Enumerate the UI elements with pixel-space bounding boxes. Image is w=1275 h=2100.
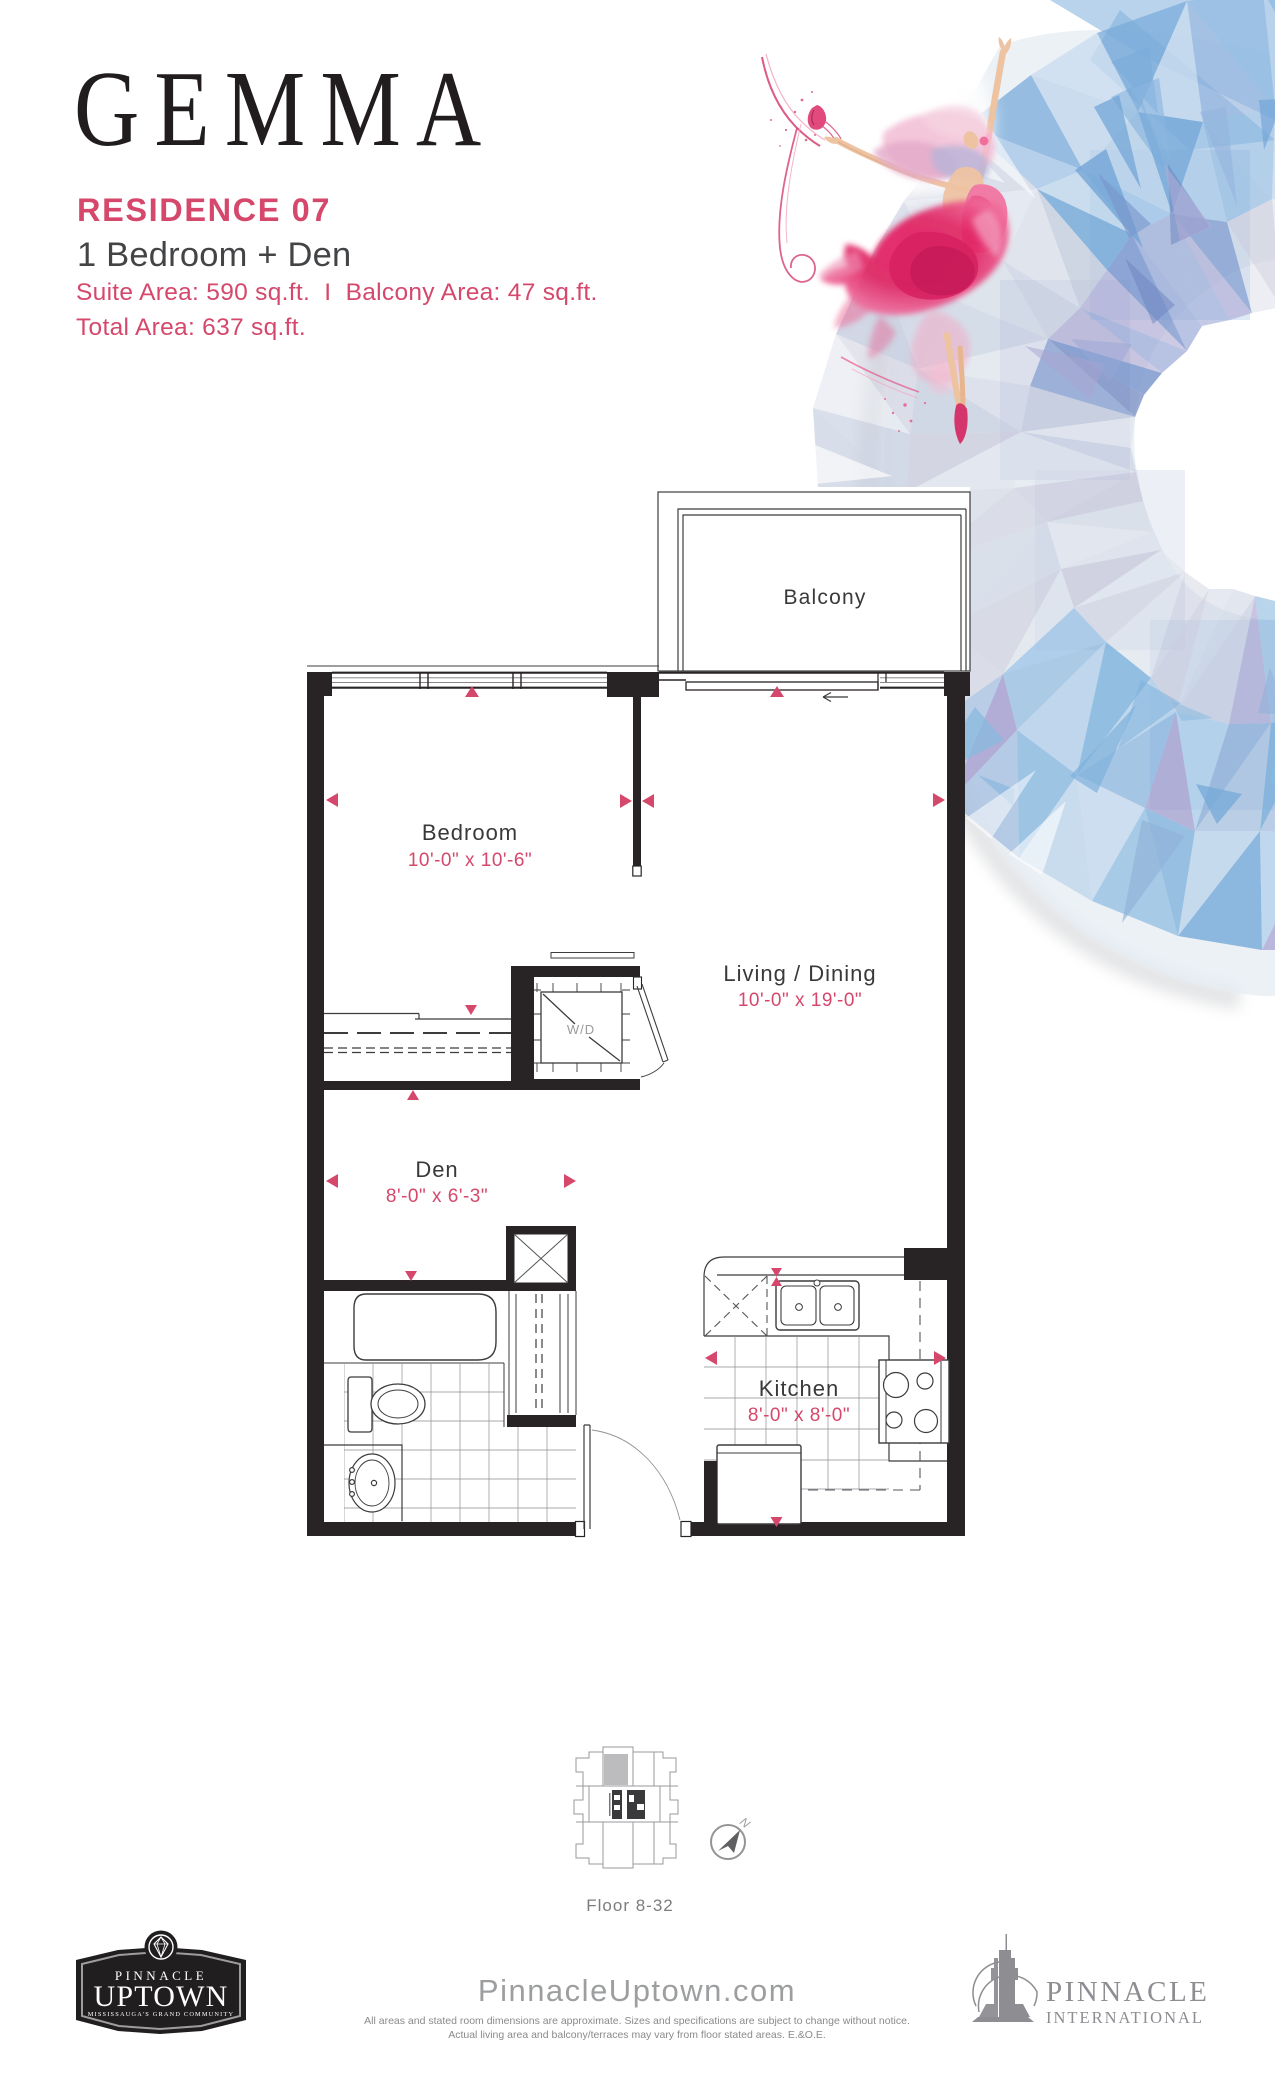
svg-text:UPTOWN: UPTOWN [94, 1980, 229, 2013]
svg-text:10'-0" x 10'-6": 10'-0" x 10'-6" [408, 850, 532, 871]
svg-text:W/D: W/D [567, 1022, 595, 1037]
svg-text:All areas and stated room dime: All areas and stated room dimensions are… [364, 2015, 910, 2027]
svg-text:PINNACLE: PINNACLE [1046, 1976, 1209, 2008]
svg-text:8'-0" x 6'-3": 8'-0" x 6'-3" [386, 1186, 488, 1207]
svg-text:Total Area: 637 sq.ft.: Total Area: 637 sq.ft. [76, 314, 306, 341]
svg-text:Suite Area: 590 sq.ft. I Bal: Suite Area: 590 sq.ft. I Balcony Area: 4… [76, 279, 598, 306]
svg-text:Floor 8-32: Floor 8-32 [586, 1896, 673, 1915]
svg-text:GEMMA: GEMMA [74, 49, 496, 169]
svg-text:Living / Dining: Living / Dining [723, 961, 876, 986]
svg-text:INTERNATIONAL: INTERNATIONAL [1046, 2008, 1204, 2027]
svg-text:1 Bedroom + Den: 1 Bedroom + Den [77, 236, 351, 274]
svg-text:Den: Den [415, 1157, 458, 1182]
svg-text:10'-0" x 19'-0": 10'-0" x 19'-0" [738, 990, 862, 1011]
svg-text:Balcony: Balcony [783, 586, 866, 609]
svg-text:Bedroom: Bedroom [422, 820, 518, 845]
svg-text:PinnacleUptown.com: PinnacleUptown.com [478, 1973, 796, 2008]
svg-text:Kitchen: Kitchen [759, 1376, 839, 1401]
svg-text:MISSISSAUGA'S GRAND COMMUNITY: MISSISSAUGA'S GRAND COMMUNITY [88, 2011, 235, 2018]
svg-text:8'-0" x 8'-0": 8'-0" x 8'-0" [748, 1405, 850, 1426]
svg-text:RESIDENCE 07: RESIDENCE 07 [77, 192, 331, 228]
svg-text:Actual living area and balcony: Actual living area and balcony/terraces … [448, 2029, 826, 2041]
